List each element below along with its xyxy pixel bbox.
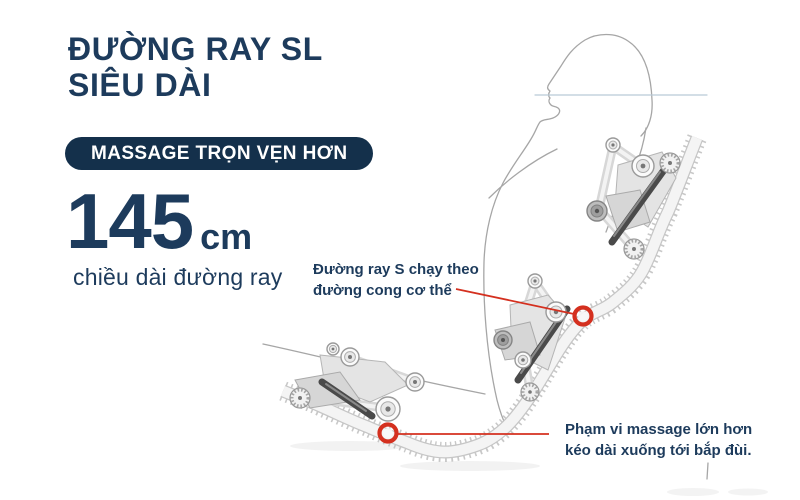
callout-connectors [380, 289, 592, 442]
shadow-smudges [290, 441, 768, 496]
massage-mechanism-middle [494, 274, 567, 401]
massage-rail-illustration [0, 0, 800, 500]
promo-banner: ĐƯỜNG RAY SL SIÊU DÀI MASSAGE TRỌN VẸN H… [0, 0, 800, 500]
